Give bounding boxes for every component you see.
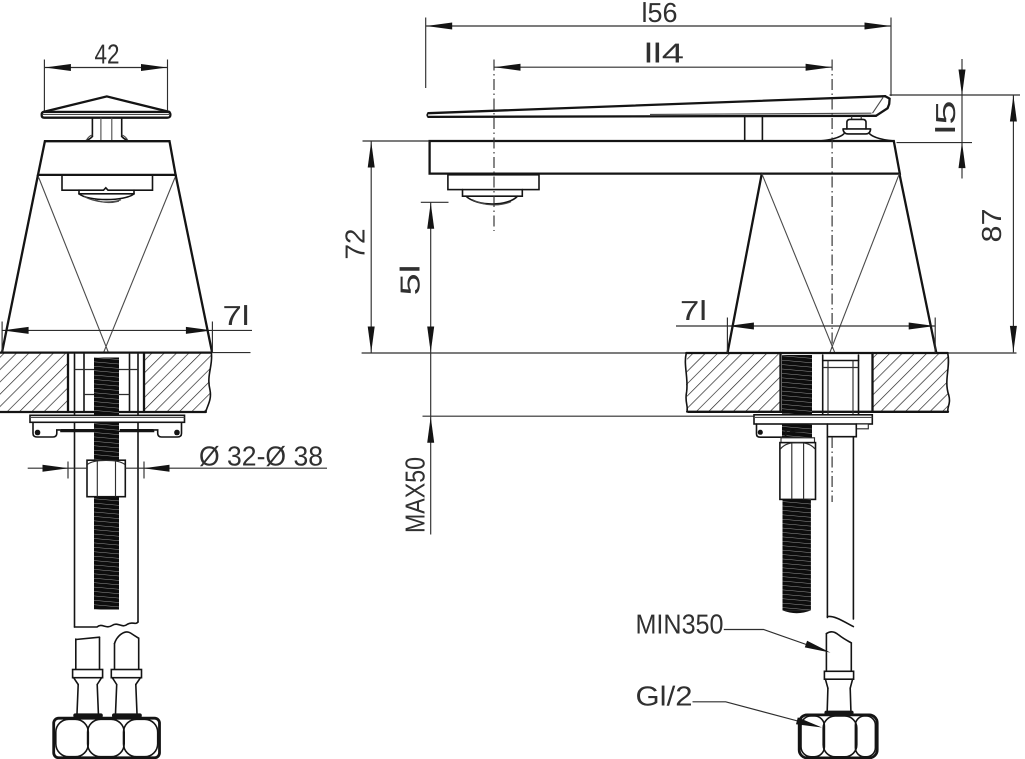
svg-text:7l: 7l [223,300,250,331]
svg-text:7l: 7l [680,295,707,326]
svg-text:MAX50: MAX50 [400,457,431,533]
svg-text:87: 87 [976,209,1007,243]
svg-text:l56: l56 [642,0,678,28]
svg-text:42: 42 [95,39,120,70]
svg-text:72: 72 [340,229,371,260]
svg-text:ll4: ll4 [644,38,684,69]
svg-text:Ø 32-Ø 38: Ø 32-Ø 38 [199,441,323,472]
svg-text:Gl/2: Gl/2 [636,681,693,712]
svg-text:l5: l5 [930,101,961,135]
svg-text:5l: 5l [395,265,426,296]
svg-text:MIN350: MIN350 [636,609,724,640]
